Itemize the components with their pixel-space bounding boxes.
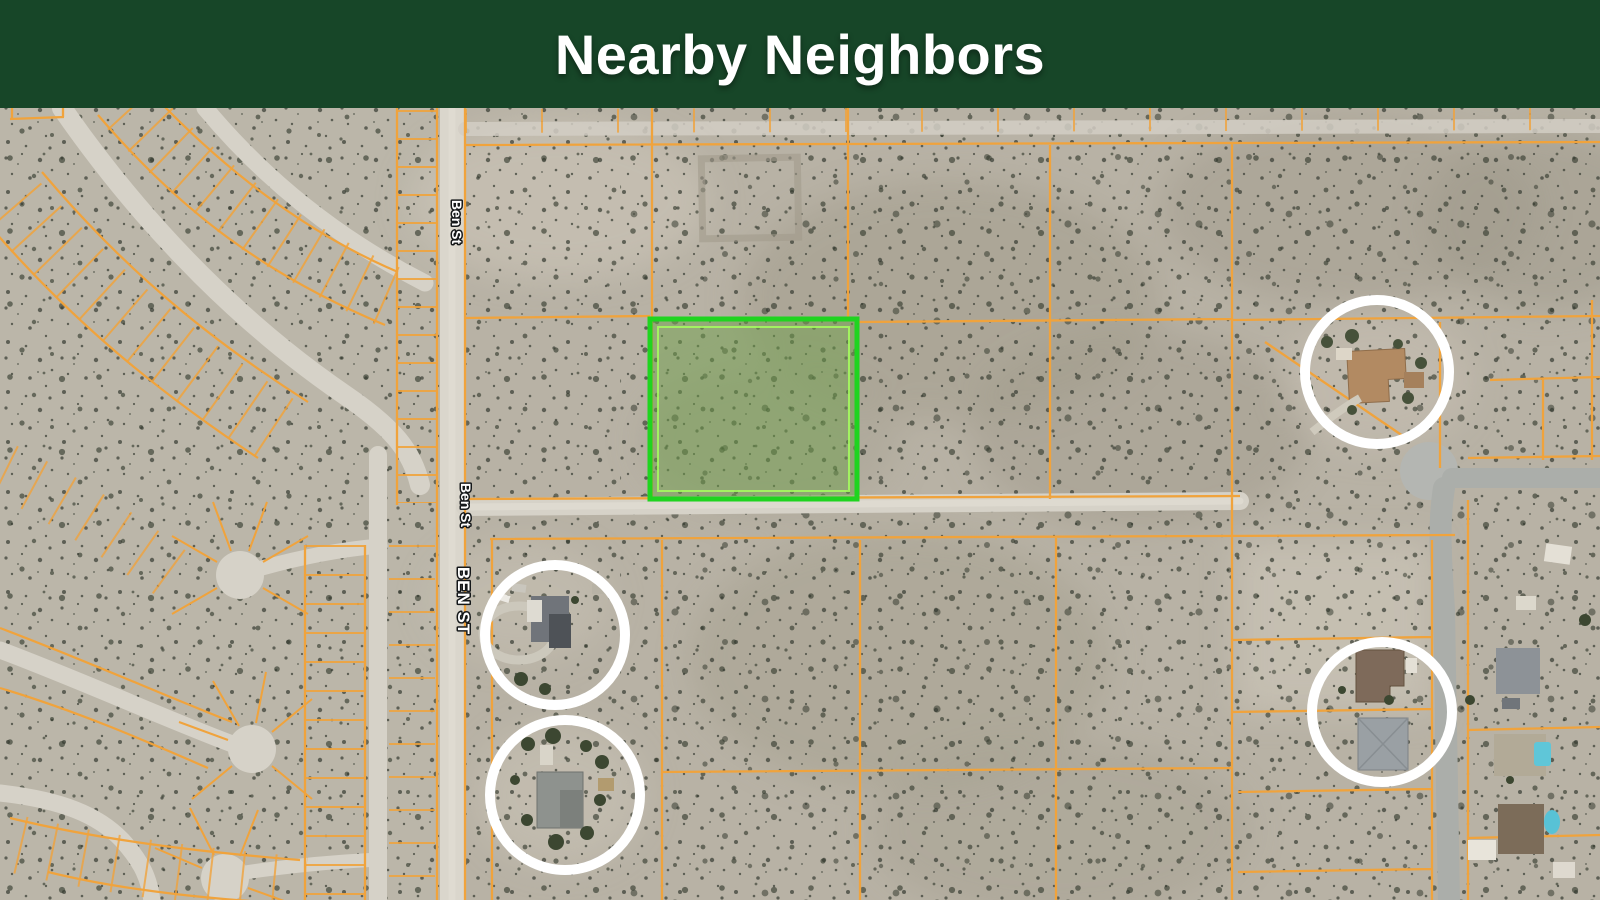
- subject-parcel-highlight: [650, 319, 857, 499]
- swimming-pool: [1534, 742, 1551, 766]
- swimming-pool: [1544, 810, 1560, 834]
- satellite-map: Ben St Ben St BEN ST: [0, 108, 1600, 900]
- street-label-ben-st: Ben St: [458, 483, 474, 528]
- subject-parcel: [650, 319, 857, 499]
- header-banner: Nearby Neighbors: [0, 0, 1600, 108]
- street-label-ben-st-caps: BEN ST: [454, 567, 473, 635]
- street-label-ben-st: Ben St: [449, 200, 465, 245]
- nearby-neighbors-graphic: Nearby Neighbors: [0, 0, 1600, 900]
- cul-de-sac-bulb: [228, 725, 276, 773]
- map-canvas: Ben St Ben St BEN ST: [0, 108, 1600, 900]
- cul-de-sac-bulb: [216, 551, 264, 599]
- page-title: Nearby Neighbors: [555, 22, 1045, 87]
